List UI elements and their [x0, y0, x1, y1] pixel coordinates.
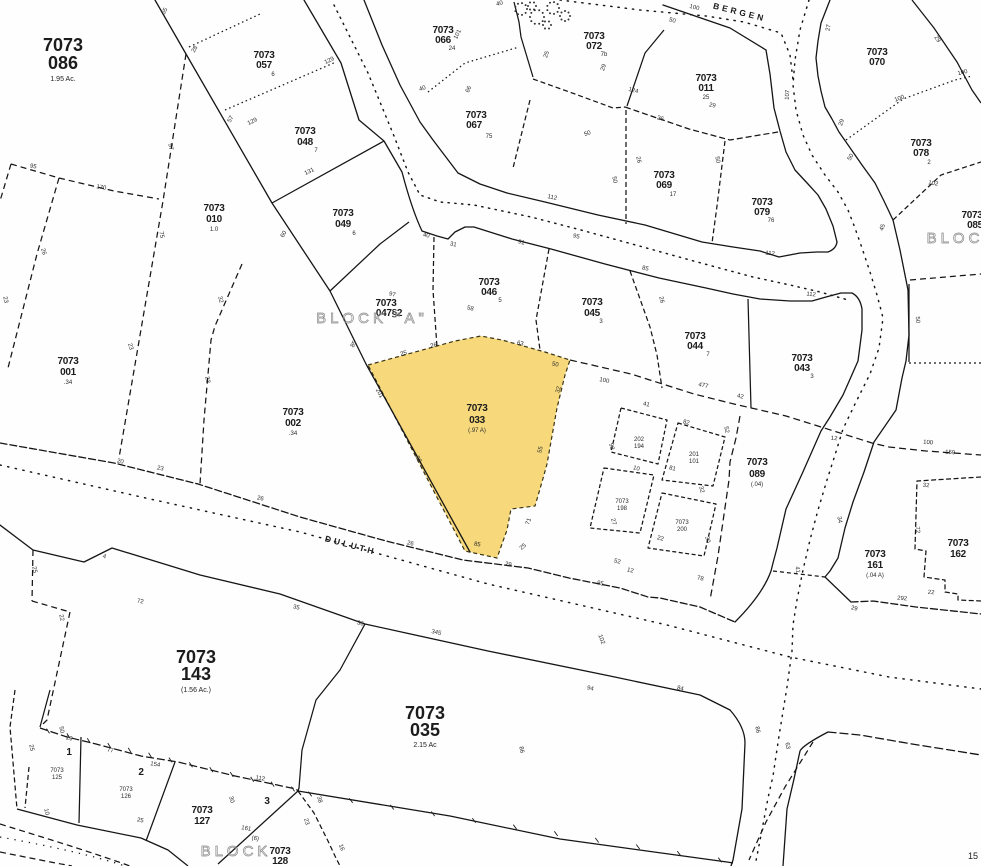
svg-text:128: 128	[272, 856, 289, 866]
svg-text:7073: 7073	[466, 403, 488, 414]
svg-text:22: 22	[927, 590, 935, 597]
svg-text:32: 32	[922, 483, 930, 490]
svg-text:7073: 7073	[581, 297, 603, 308]
svg-text:046: 046	[481, 287, 498, 298]
svg-text:.34: .34	[289, 431, 298, 437]
svg-text:049: 049	[335, 219, 352, 230]
svg-text:7073: 7073	[615, 499, 629, 505]
svg-text:069: 069	[656, 180, 673, 191]
svg-text:(.04 A): (.04 A)	[866, 573, 884, 579]
svg-text:011: 011	[698, 83, 714, 94]
svg-text:7073: 7073	[675, 520, 689, 526]
svg-text:7073: 7073	[119, 787, 133, 793]
svg-text:BLOCK: BLOCK	[927, 230, 981, 247]
svg-text:1: 1	[66, 747, 72, 758]
svg-text:086: 086	[48, 53, 78, 73]
svg-text:72: 72	[914, 526, 921, 534]
svg-text:17: 17	[670, 192, 677, 198]
svg-text:7073: 7073	[864, 549, 886, 560]
svg-text:057: 057	[256, 60, 273, 71]
svg-text:7073: 7073	[947, 538, 969, 549]
svg-text:079: 079	[754, 207, 771, 218]
svg-text:198: 198	[617, 506, 628, 512]
svg-text:76: 76	[768, 218, 775, 224]
svg-text:107: 107	[785, 89, 792, 100]
svg-text:7073: 7073	[191, 805, 213, 816]
svg-text:161: 161	[867, 560, 884, 571]
svg-text:044: 044	[687, 341, 704, 352]
svg-text:7b: 7b	[601, 52, 608, 58]
svg-text:(.97 A): (.97 A)	[468, 428, 486, 434]
svg-text:75: 75	[486, 134, 493, 140]
svg-text:143: 143	[181, 664, 211, 684]
svg-text:045: 045	[584, 308, 601, 319]
svg-text:50: 50	[914, 316, 921, 324]
svg-text:2: 2	[138, 767, 144, 778]
svg-text:25: 25	[703, 95, 710, 101]
svg-text:7073: 7073	[294, 126, 316, 137]
svg-text:7073: 7073	[332, 208, 354, 219]
svg-text:066: 066	[435, 35, 452, 46]
svg-text:162: 162	[950, 549, 967, 560]
svg-text:127: 127	[194, 816, 211, 827]
svg-text:BLOCK "A": BLOCK "A"	[316, 310, 428, 327]
svg-text:3: 3	[264, 796, 270, 807]
svg-text:072: 072	[586, 41, 603, 52]
svg-text:2.15 Ac: 2.15 Ac	[413, 742, 437, 749]
svg-text:12: 12	[830, 436, 838, 443]
svg-text:292: 292	[897, 596, 908, 603]
svg-text:7073: 7073	[203, 203, 225, 214]
svg-text:7073: 7073	[50, 768, 64, 774]
svg-text:067: 067	[466, 120, 483, 131]
svg-text:200: 200	[677, 527, 688, 533]
svg-text:1.0: 1.0	[210, 227, 219, 233]
svg-text:002: 002	[285, 418, 302, 429]
svg-text:7073: 7073	[57, 356, 79, 367]
svg-text:035: 035	[410, 720, 440, 740]
svg-text:(6): (6)	[251, 835, 259, 842]
svg-text:24: 24	[449, 46, 456, 52]
svg-text:048: 048	[297, 137, 314, 148]
svg-text:126: 126	[121, 794, 132, 800]
svg-text:043: 043	[794, 363, 811, 374]
svg-text:.34: .34	[64, 380, 73, 386]
svg-text:125: 125	[52, 775, 63, 781]
svg-text:100: 100	[923, 440, 934, 447]
svg-text:7073: 7073	[746, 457, 768, 468]
svg-text:BLOCK: BLOCK	[201, 843, 272, 860]
svg-text:(1.56 Ac.): (1.56 Ac.)	[181, 687, 211, 694]
svg-text:078: 078	[913, 148, 930, 159]
svg-text:033: 033	[469, 415, 486, 426]
svg-text:010: 010	[206, 214, 223, 225]
svg-text:7073: 7073	[43, 35, 83, 55]
svg-text:7073: 7073	[282, 407, 304, 418]
svg-text:15: 15	[968, 851, 978, 861]
svg-text:112: 112	[765, 251, 776, 258]
svg-text:202: 202	[634, 437, 645, 443]
svg-text:159: 159	[945, 450, 956, 457]
svg-text:070: 070	[869, 57, 886, 68]
svg-text:001: 001	[60, 367, 77, 378]
svg-text:101: 101	[689, 459, 700, 465]
svg-text:112: 112	[806, 292, 817, 299]
svg-text:194: 194	[634, 444, 645, 450]
svg-text:201: 201	[689, 452, 700, 458]
svg-text:089: 089	[749, 469, 766, 480]
svg-text:1.95 Ac.: 1.95 Ac.	[50, 76, 75, 83]
svg-text:(.04): (.04)	[751, 482, 763, 488]
